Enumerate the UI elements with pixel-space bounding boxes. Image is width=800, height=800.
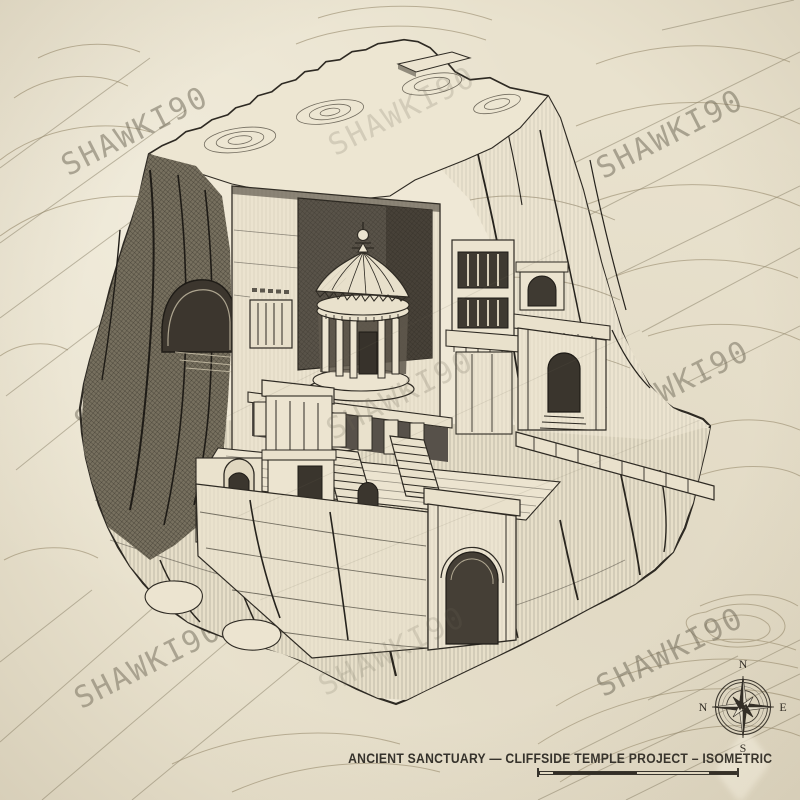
rock-base <box>82 418 710 700</box>
lower-wall <box>196 484 428 658</box>
scale-bar-segment <box>637 771 709 775</box>
compass-rose: N E S N <box>693 655 793 755</box>
watermark-text: SHAWKI90 <box>597 333 756 437</box>
right-terrace-wall <box>516 432 714 500</box>
left-cliff-face <box>82 154 246 560</box>
cliffside-temple-illustration <box>0 0 800 800</box>
watermark-text: SHAWKI90 <box>69 335 228 439</box>
watermark-text: SHAWKI90 <box>321 343 480 447</box>
scale-bar-tick <box>737 768 739 777</box>
facade-window <box>250 288 292 348</box>
rock-shrine <box>516 262 568 310</box>
plateau-summit <box>149 40 548 200</box>
scale-bar-segment <box>539 771 553 775</box>
artwork-canvas: SHAWKI90 SHAWKI90 SHAWKI90 <box>0 0 800 800</box>
arched-doorway <box>196 458 262 542</box>
compass-label-north: N <box>739 657 748 671</box>
colonnade-terrace <box>196 380 560 542</box>
carved-facade <box>232 186 440 474</box>
window-balcony-block <box>446 240 520 434</box>
compass-label-east: E <box>779 700 786 714</box>
tholos-finial <box>352 222 374 252</box>
gate-arch <box>424 488 520 650</box>
watermark-text: SHAWKI90 <box>323 59 482 163</box>
watermark-text: SHAWKI90 <box>56 79 215 183</box>
tholos-temple <box>308 222 414 401</box>
fallen-rocks <box>145 581 281 650</box>
rock-massif-silhouette <box>80 40 710 704</box>
small-arch-door <box>358 482 378 514</box>
scale-bar-segment <box>553 771 637 775</box>
watermark-text: SHAWKI90 <box>591 82 750 186</box>
paper-vignette <box>0 0 800 800</box>
bastion-tower <box>262 380 336 506</box>
right-cliff-face <box>440 96 710 440</box>
portal-building <box>514 314 610 430</box>
temple-niche <box>298 198 432 370</box>
staircase <box>390 436 442 500</box>
cave-opening <box>162 280 246 373</box>
watermark-text: SHAWKI90 <box>313 599 472 703</box>
caption-text: ANCIENT SANCTUARY — CLIFFSIDE TEMPLE PRO… <box>348 751 772 766</box>
scale-bar-segment <box>709 771 737 775</box>
staircase <box>324 448 376 514</box>
watermark-text: SHAWKI90 <box>69 612 228 716</box>
tholos-door <box>359 332 377 374</box>
scale-bar <box>537 767 741 778</box>
compass-star <box>712 676 774 738</box>
background-contour-lines <box>0 0 800 800</box>
compass-label-west: N <box>699 700 708 714</box>
